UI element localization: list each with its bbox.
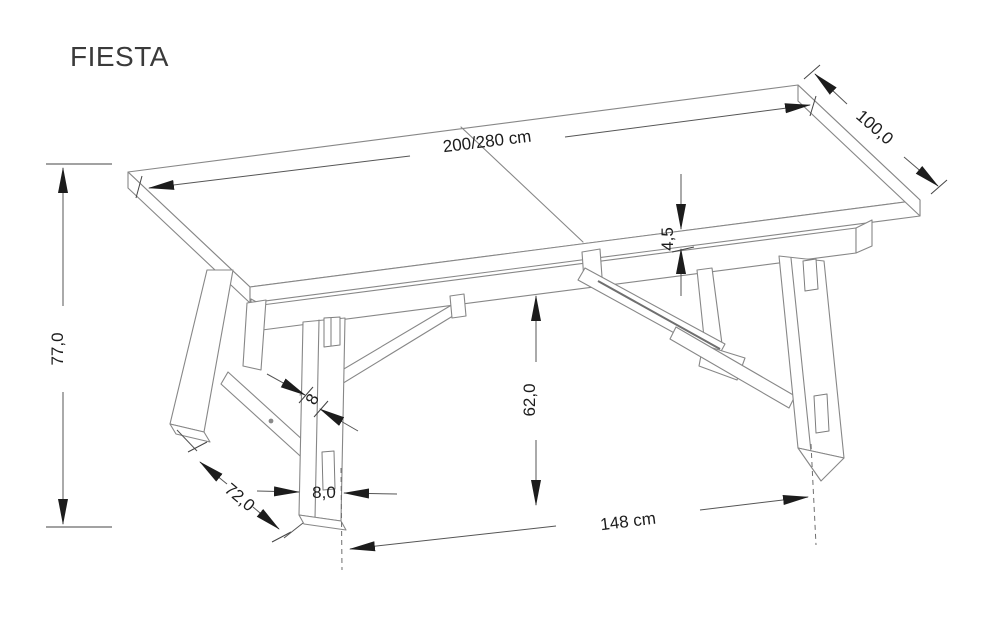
- dimension-underframe-height: 62,0: [520, 296, 539, 505]
- brace-screw: [269, 419, 274, 424]
- technical-drawing-canvas: 200/280 cm 100,0 4,5 77,0 62,0 148 cm: [0, 0, 1000, 643]
- span-dim-line-right: [700, 497, 808, 510]
- span-dim-line-left: [350, 526, 556, 549]
- product-title: FIESTA: [70, 41, 169, 72]
- dimension-trestle-depth: 72,0: [177, 430, 303, 542]
- span-label: 148 cm: [599, 509, 657, 535]
- right-rising-brace: [670, 327, 795, 408]
- trestle-dim-line-lower: [253, 507, 279, 529]
- trestle-dim-line-upper: [200, 462, 227, 484]
- trestle-extension-tick-upper: [188, 442, 207, 452]
- left-back-leg: [170, 270, 233, 432]
- underframe-label: 62,0: [520, 383, 539, 416]
- depth-dim-line-bottom: [904, 157, 938, 186]
- dimension-total-height: 77,0: [46, 164, 112, 527]
- left-leg-upper-mortise: [324, 317, 340, 347]
- height-label: 77,0: [48, 332, 67, 365]
- trestle-extension-tick-lower: [272, 532, 291, 542]
- leg-width-leader-right: [344, 493, 397, 494]
- thickness-label: 4,5: [658, 227, 677, 251]
- left-brace-tenon-block: [450, 294, 466, 318]
- right-leg-upper-mortise: [803, 259, 818, 291]
- right-leg-lower-mortise: [814, 394, 829, 433]
- trestle-extension-line-lower: [284, 523, 303, 538]
- brace-leader-upper: [267, 374, 305, 395]
- depth-dim-line-top: [815, 74, 847, 104]
- dimension-leg-width: 8,0: [257, 483, 397, 502]
- leg-width-leader-left: [257, 491, 299, 492]
- leg-width-label: 8,0: [312, 483, 336, 502]
- trestle-depth-label: 72,0: [221, 479, 259, 515]
- table-drawing: [128, 85, 920, 530]
- dimension-leg-span: 148 cm: [341, 444, 816, 570]
- trestle-beam-stub: [243, 300, 266, 370]
- apron-right-end-face: [856, 220, 872, 253]
